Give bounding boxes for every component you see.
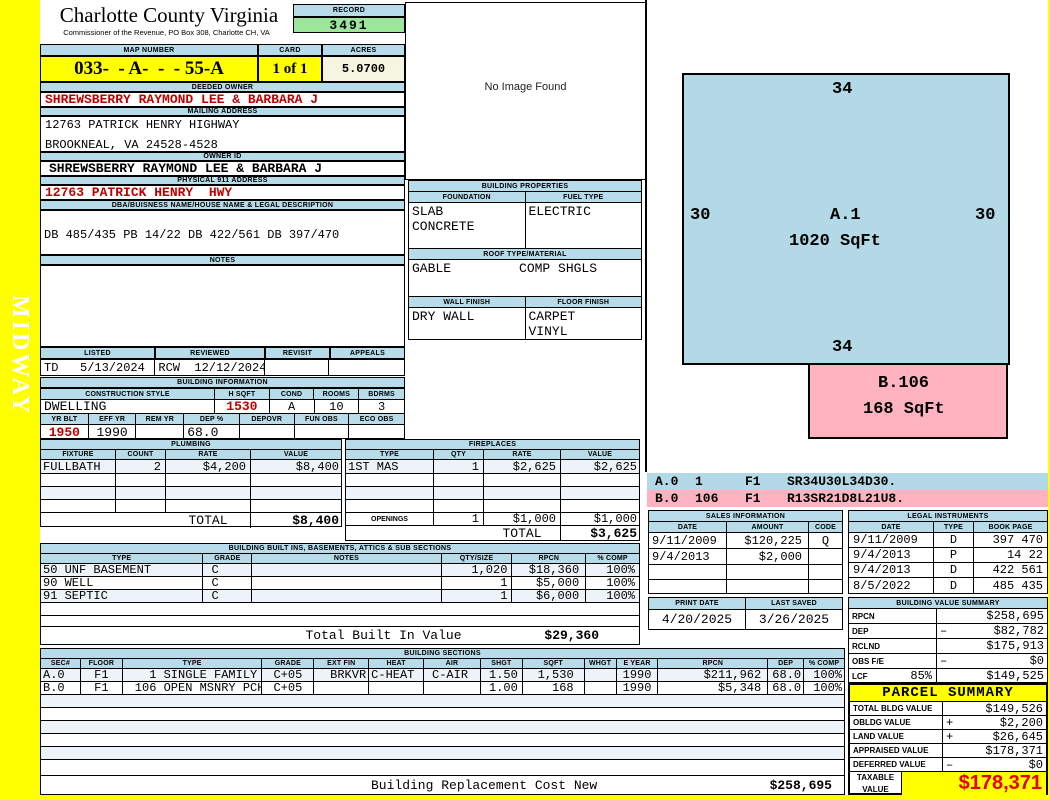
value-summary-row: DEP – $82,782 bbox=[849, 624, 1047, 639]
owner-id-value: SHREWSBERRY RAYMOND LEE & BARBARA J bbox=[40, 161, 405, 176]
bs-h-comp: % COMP bbox=[804, 659, 844, 668]
sale-date: 9/11/2009 bbox=[649, 533, 727, 548]
bs-eyear: 1990 bbox=[617, 669, 659, 681]
taxable-label: TAXABLE VALUE bbox=[850, 772, 902, 795]
li-h-bookpage: BOOK PAGE bbox=[974, 522, 1047, 532]
li-type: P bbox=[934, 548, 974, 562]
builtins-row: 90 WELL C 1 $5,000 100% bbox=[41, 577, 639, 590]
builtins-grade: C bbox=[203, 590, 252, 602]
bs-comp: 100% bbox=[804, 682, 844, 694]
building-information-table: CONSTRUCTION STYLE H SQFT COND ROOMS BDR… bbox=[40, 388, 405, 439]
fireplaces-rate: $2,625 bbox=[484, 460, 561, 473]
fireplaces-qty: 1 bbox=[434, 460, 484, 473]
builtins-comp: 100% bbox=[586, 590, 639, 602]
li-date: 9/4/2013 bbox=[849, 548, 934, 562]
li-bookpage: 485 435 bbox=[974, 578, 1047, 593]
bs-eyear: 1990 bbox=[617, 682, 659, 694]
legal-instrument-row: 9/4/2013 P 14 22 bbox=[849, 548, 1047, 563]
fireplaces-h-value: VALUE bbox=[561, 450, 639, 459]
sketch-a-left-dim: 30 bbox=[690, 206, 710, 225]
roof-value: GABLE COMP SHGLS bbox=[409, 260, 641, 296]
ps-label: LAND VALUE bbox=[850, 730, 943, 743]
value-summary-row: LCF 85% $149,525 bbox=[849, 669, 1047, 683]
bs-rpcn: $5,348 bbox=[658, 682, 768, 694]
legend-a-sec: A.0 bbox=[647, 474, 695, 489]
acres-value: 5.0700 bbox=[322, 56, 405, 82]
bs-type: 106 OPEN MSNRY PCH bbox=[123, 682, 263, 694]
mailing-address-label: MAILING ADDRESS bbox=[40, 107, 405, 116]
legal-instrument-row: 9/11/2009 D 397 470 bbox=[849, 533, 1047, 548]
builtins-type: 91 SEPTIC bbox=[41, 590, 203, 602]
building-value-summary-title: BUILDING VALUE SUMMARY bbox=[849, 598, 1047, 609]
bs-comp: 100% bbox=[804, 669, 844, 681]
bs-shgt: 1.00 bbox=[481, 682, 523, 694]
last-saved-label: LAST SAVED bbox=[746, 598, 842, 609]
vs-label: OBS F/E bbox=[849, 654, 937, 668]
depovr-value bbox=[240, 425, 295, 440]
builtins-h-grade: GRADE bbox=[203, 554, 252, 563]
bs-rpcn: $211,962 bbox=[658, 669, 768, 681]
fireplaces-type: 1ST MAS bbox=[346, 460, 434, 473]
builtins-type: 90 WELL bbox=[41, 577, 203, 589]
plumbing-table: PLUMBING FIXTURE COUNT RATE VALUE FULLBA… bbox=[40, 439, 342, 527]
vs-extra: 85% bbox=[868, 669, 936, 683]
li-bookpage: 397 470 bbox=[974, 533, 1047, 547]
sale-code: Q bbox=[809, 533, 842, 548]
foundation-line2: CONCRETE bbox=[412, 219, 474, 234]
listed-label: LISTED bbox=[40, 347, 155, 359]
li-h-type: TYPE bbox=[934, 522, 974, 532]
revisit-label: REVISIT bbox=[265, 347, 330, 359]
card-value: 1 of 1 bbox=[258, 56, 322, 82]
wall-label: WALL FINISH bbox=[409, 297, 526, 307]
appeals-label: APPEALS bbox=[330, 347, 405, 359]
yrblt-value: 1950 bbox=[41, 425, 89, 440]
li-date: 9/11/2009 bbox=[849, 533, 934, 547]
floor-line2: VINYL bbox=[529, 324, 568, 339]
fireplaces-table: FIREPLACES TYPE QTY RATE VALUE 1ST MAS 1… bbox=[345, 439, 640, 541]
bs-h-grade: GRADE bbox=[262, 659, 314, 668]
mailing-line2: BROOKNEAL, VA 24528-4528 bbox=[45, 138, 218, 152]
sale-amount: $120,225 bbox=[727, 533, 809, 548]
owner-id-label: OWNER ID bbox=[40, 152, 405, 161]
floor-line1: CARPET bbox=[529, 309, 576, 324]
county-title: Charlotte County Virginia bbox=[45, 3, 293, 28]
rooms-label: ROOMS bbox=[314, 389, 359, 399]
builtins-comp: 100% bbox=[586, 577, 639, 589]
ecoobs-value bbox=[349, 425, 404, 440]
physical-address-label: PHYSICAL 911 ADDRESS bbox=[40, 176, 405, 185]
bs-sqft: 1,530 bbox=[523, 669, 585, 681]
ps-sign: + bbox=[943, 730, 956, 743]
building-section-row: B.0 F1 106 OPEN MSNRY PCH C+05 1.00 168 … bbox=[41, 682, 844, 695]
bs-heat: C-HEAT bbox=[369, 669, 424, 681]
cond-label: COND bbox=[270, 389, 315, 399]
remyr-label: REM YR bbox=[136, 414, 184, 424]
bs-heat bbox=[369, 682, 424, 694]
openings-qty: 1 bbox=[434, 513, 484, 525]
sale-code bbox=[809, 549, 842, 564]
sale-amount: $2,000 bbox=[727, 549, 809, 564]
bs-grade: C+05 bbox=[262, 682, 314, 694]
legal-description-label: DBA/BUISNESS NAME/HOUSE NAME & LEGAL DES… bbox=[40, 200, 405, 210]
ps-value: $2,200 bbox=[956, 716, 1046, 729]
sketch-legend-b: B.0 106 F1 R13SR21D8L21U8. bbox=[647, 490, 1048, 507]
sketch-a-top-dim: 34 bbox=[832, 80, 852, 99]
listed-value: TD 5/13/2024 bbox=[41, 360, 155, 375]
acres-label: ACRES bbox=[322, 44, 405, 56]
sales-h-code: CODE bbox=[809, 522, 842, 532]
bs-h-sqft: SQFT bbox=[523, 659, 585, 668]
bs-ext bbox=[314, 682, 369, 694]
openings-label: OPENINGS bbox=[346, 513, 434, 525]
building-properties-title: BUILDING PROPERTIES bbox=[409, 181, 641, 192]
sketch-a-sqft: 1020 SqFt bbox=[789, 232, 881, 251]
vs-label: RPCN bbox=[849, 609, 937, 623]
bs-dep: 68.0 bbox=[768, 682, 804, 694]
bs-h-rpcn: RPCN bbox=[658, 659, 768, 668]
bdrms-label: BDRMS bbox=[359, 389, 404, 399]
vs-label: RCLND bbox=[849, 639, 937, 653]
sales-h-date: DATE bbox=[649, 522, 727, 532]
wall-value: DRY WALL bbox=[409, 308, 526, 339]
building-information-title: BUILDING INFORMATION bbox=[40, 377, 405, 388]
map-number-label: MAP NUMBER bbox=[40, 44, 258, 56]
plumbing-h-fixture: FIXTURE bbox=[41, 450, 116, 459]
bs-whgt bbox=[585, 669, 617, 681]
sketch-a-label: A.1 bbox=[830, 206, 861, 225]
fuel-label: FUEL TYPE bbox=[526, 192, 642, 202]
li-type: D bbox=[934, 563, 974, 577]
plumbing-h-value: VALUE bbox=[251, 450, 341, 459]
ps-sign: + bbox=[943, 716, 956, 729]
bs-h-air: AIR bbox=[424, 659, 481, 668]
bs-h-whgt: WHGT bbox=[585, 659, 617, 668]
legal-description-box: DB 485/435 PB 14/22 DB 422/561 DB 397/47… bbox=[40, 210, 405, 255]
appeals-value bbox=[329, 360, 404, 375]
legend-b-floor: F1 bbox=[745, 491, 787, 506]
ps-sign: – bbox=[943, 758, 956, 771]
replacement-cost-value: $258,695 bbox=[651, 776, 844, 794]
roof-label: ROOF TYPE/MATERIAL bbox=[409, 249, 641, 260]
builtins-h-qty: QTY/SIZE bbox=[442, 554, 513, 563]
value-summary-row: OBS F/E – $0 bbox=[849, 654, 1047, 669]
bs-h-heat: HEAT bbox=[369, 659, 424, 668]
legend-b-sec: B.0 bbox=[647, 491, 695, 506]
li-bookpage: 14 22 bbox=[974, 548, 1047, 562]
dep-value: 68.0 bbox=[184, 425, 240, 440]
card-label: CARD bbox=[258, 44, 322, 56]
bs-h-shgt: SHGT bbox=[481, 659, 523, 668]
fireplaces-total-value: $3,625 bbox=[561, 526, 639, 541]
builtins-rpcn: $5,000 bbox=[512, 577, 586, 589]
rooms-value: 10 bbox=[315, 400, 360, 413]
plumbing-total-label: TOTAL bbox=[166, 513, 251, 528]
map-number-value: 033- - A- - - 55-A bbox=[40, 56, 258, 82]
value-summary-row: RCLND $175,913 bbox=[849, 639, 1047, 654]
building-sections-table: BUILDING SECTIONS SEC# FLOOR TYPE GRADE … bbox=[40, 648, 845, 795]
sales-row: 9/11/2009 $120,225 Q bbox=[649, 533, 842, 549]
openings-rate: $1,000 bbox=[484, 513, 561, 525]
builtins-type: 50 UNF BASEMENT bbox=[41, 564, 203, 576]
bs-whgt bbox=[585, 682, 617, 694]
foundation-value: SLAB CONCRETE bbox=[409, 203, 526, 248]
bs-air: C-AIR bbox=[424, 669, 481, 681]
print-info: PRINT DATE LAST SAVED 4/20/2025 3/26/202… bbox=[648, 597, 843, 630]
sketch-b-label: B.106 bbox=[878, 374, 929, 393]
builtins-h-rpcn: RPCN bbox=[512, 554, 586, 563]
legend-a-code: 1 bbox=[695, 474, 745, 489]
construction-style-label: CONSTRUCTION STYLE bbox=[41, 389, 215, 399]
fuel-value: ELECTRIC bbox=[526, 203, 642, 248]
parcel-summary: PARCEL SUMMARY TOTAL BLDG VALUE $149,526… bbox=[848, 683, 1048, 795]
li-h-date: DATE bbox=[849, 522, 934, 532]
vs-label: LCF bbox=[852, 672, 868, 681]
plumbing-h-count: COUNT bbox=[116, 450, 166, 459]
bs-h-sec: SEC# bbox=[41, 659, 81, 668]
bdrms-value: 3 bbox=[359, 400, 404, 413]
bs-h-floor: FLOOR bbox=[81, 659, 123, 668]
plumbing-title: PLUMBING bbox=[41, 440, 341, 450]
notes-box bbox=[40, 265, 405, 347]
effyr-value: 1990 bbox=[89, 425, 137, 440]
legal-instruments-title: LEGAL INSTRUMENTS bbox=[849, 511, 1047, 522]
value-summary-row: RPCN $258,695 bbox=[849, 609, 1047, 624]
plumbing-fixture: FULLBATH bbox=[41, 460, 116, 473]
fireplaces-row: 1ST MAS 1 $2,625 $2,625 bbox=[346, 460, 639, 474]
physical-address-value: 12763 PATRICK HENRY HWY bbox=[40, 185, 405, 200]
floor-label: FLOOR FINISH bbox=[526, 297, 642, 307]
legal-description-value: DB 485/435 PB 14/22 DB 422/561 DB 397/47… bbox=[44, 228, 339, 242]
li-date: 9/4/2013 bbox=[849, 563, 934, 577]
bs-sec: B.0 bbox=[41, 682, 81, 694]
builtins-total-value: $29,360 bbox=[514, 627, 639, 644]
builtins-rpcn: $18,360 bbox=[512, 564, 586, 576]
bs-h-ext: EXT FIN bbox=[314, 659, 369, 668]
print-date-value: 4/20/2025 bbox=[649, 610, 746, 629]
vs-value: $258,695 bbox=[951, 609, 1047, 623]
foundation-label: FOUNDATION bbox=[409, 192, 526, 202]
notes-label: NOTES bbox=[40, 255, 405, 265]
bs-type: 1 SINGLE FAMILY bbox=[123, 669, 263, 681]
legend-b-trace: R13SR21D8L21U8. bbox=[787, 491, 904, 506]
bs-h-dep: DEP bbox=[768, 659, 804, 668]
ps-label: TOTAL BLDG VALUE bbox=[850, 702, 943, 715]
vs-value: $149,525 bbox=[951, 669, 1047, 683]
bs-shgt: 1.50 bbox=[481, 669, 523, 681]
plumbing-value: $8,400 bbox=[251, 460, 341, 473]
builtins-comp: 100% bbox=[586, 564, 639, 576]
builtins-total-label: Total Built In Value bbox=[253, 627, 514, 644]
builtins-notes bbox=[252, 577, 441, 589]
sketch-divider bbox=[645, 0, 647, 472]
hsqft-value: 1530 bbox=[215, 400, 270, 413]
plumbing-row: FULLBATH 2 $4,200 $8,400 bbox=[41, 460, 341, 474]
revisit-value bbox=[265, 360, 330, 375]
yrblt-label: YR BLT bbox=[41, 414, 89, 424]
sketch-legend-a: A.0 1 F1 SR34U30L34D30. bbox=[647, 473, 1048, 490]
legend-a-floor: F1 bbox=[745, 474, 787, 489]
last-saved-value: 3/26/2025 bbox=[746, 610, 842, 629]
builtins-grade: C bbox=[203, 564, 252, 576]
reviewed-label: REVIEWED bbox=[155, 347, 265, 359]
sketch-b-sqft: 168 SqFt bbox=[863, 400, 945, 419]
bs-grade: C+05 bbox=[262, 669, 314, 681]
deeded-owner-value: SHREWSBERRY RAYMOND LEE & BARBARA J bbox=[40, 92, 405, 107]
funobs-label: FUN OBS bbox=[295, 414, 350, 424]
bs-h-eyear: E YEAR bbox=[617, 659, 659, 668]
builtins-notes bbox=[252, 590, 441, 602]
watermark-midway: MIDWAY bbox=[6, 295, 33, 416]
ps-value: $0 bbox=[956, 758, 1046, 771]
property-record-card: MIDWAY Charlotte County Virginia Commiss… bbox=[0, 0, 1050, 800]
built-ins-title: BUILDING BUILT INS, BASEMENTS, ATTICS & … bbox=[41, 544, 639, 554]
plumbing-h-rate: RATE bbox=[166, 450, 251, 459]
parcel-summary-row: OBLDG VALUE + $2,200 bbox=[850, 716, 1046, 730]
mailing-line1: 12763 PATRICK HENRY HIGHWAY bbox=[45, 118, 239, 132]
floor-value: CARPET VINYL bbox=[526, 308, 642, 339]
sales-title: SALES INFORMATION bbox=[649, 511, 842, 522]
commissioner-line: Commissioner of the Revenue, PO Box 308,… bbox=[40, 28, 293, 37]
legal-instrument-row: 8/5/2022 D 485 435 bbox=[849, 578, 1047, 593]
bs-floor: F1 bbox=[81, 669, 123, 681]
ecoobs-label: ECO OBS bbox=[349, 414, 404, 424]
builtins-h-comp: % COMP bbox=[586, 554, 639, 563]
parcel-summary-title: PARCEL SUMMARY bbox=[850, 685, 1046, 702]
fireplaces-title: FIREPLACES bbox=[346, 440, 639, 450]
sales-row: 9/4/2013 $2,000 bbox=[649, 549, 842, 565]
mailing-address-box: 12763 PATRICK HENRY HIGHWAY BROOKNEAL, V… bbox=[40, 116, 405, 152]
vs-value: $175,913 bbox=[951, 639, 1047, 653]
bs-ext: BRKVR bbox=[314, 669, 369, 681]
bs-air bbox=[424, 682, 481, 694]
vs-sign: – bbox=[937, 624, 951, 638]
builtins-notes bbox=[252, 564, 441, 576]
plumbing-total-value: $8,400 bbox=[251, 513, 341, 528]
builtins-qty: 1 bbox=[442, 577, 513, 589]
sales-h-amount: AMOUNT bbox=[727, 522, 809, 532]
fireplaces-openings-row: OPENINGS 1 $1,000 $1,000 bbox=[346, 513, 639, 526]
funobs-value bbox=[295, 425, 350, 440]
legal-instrument-row: 9/4/2013 D 422 561 bbox=[849, 563, 1047, 578]
building-section-row: A.0 F1 1 SINGLE FAMILY C+05 BRKVR C-HEAT… bbox=[41, 669, 844, 682]
ps-label: DEFERRED VALUE bbox=[850, 758, 943, 771]
deeded-owner-label: DEEDED OWNER bbox=[40, 82, 405, 92]
sketch-a-bottom-dim: 34 bbox=[832, 338, 852, 357]
reviewed-value: RCW 12/12/2024 bbox=[155, 360, 264, 375]
effyr-label: EFF YR bbox=[89, 414, 137, 424]
construction-style-value: DWELLING bbox=[41, 400, 215, 413]
image-placeholder: No Image Found bbox=[405, 2, 646, 180]
fireplaces-h-qty: QTY bbox=[434, 450, 484, 459]
li-bookpage: 422 561 bbox=[974, 563, 1047, 577]
ps-label: OBLDG VALUE bbox=[850, 716, 943, 729]
ps-label: APPRAISED VALUE bbox=[850, 744, 943, 757]
builtins-h-notes: NOTES bbox=[252, 554, 441, 563]
taxable-value: $178,371 bbox=[902, 772, 1046, 795]
bs-floor: F1 bbox=[81, 682, 123, 694]
building-properties-table: BUILDING PROPERTIES FOUNDATION FUEL TYPE… bbox=[408, 180, 642, 340]
building-sections-title: BUILDING SECTIONS bbox=[41, 649, 844, 659]
building-value-summary: BUILDING VALUE SUMMARY RPCN $258,695 DEP… bbox=[848, 597, 1048, 683]
fireplaces-total-label: TOTAL bbox=[484, 526, 561, 541]
bs-h-type: TYPE bbox=[123, 659, 263, 668]
builtins-row: 50 UNF BASEMENT C 1,020 $18,360 100% bbox=[41, 564, 639, 577]
sale-date: 9/4/2013 bbox=[649, 549, 727, 564]
li-type: D bbox=[934, 533, 974, 547]
vs-value: $82,782 bbox=[951, 624, 1047, 638]
foundation-line1: SLAB bbox=[412, 204, 443, 219]
parcel-summary-row: APPRAISED VALUE $178,371 bbox=[850, 744, 1046, 758]
plumbing-count: 2 bbox=[116, 460, 166, 473]
review-values: TD 5/13/2024 RCW 12/12/2024 bbox=[40, 359, 405, 376]
bs-sqft: 168 bbox=[523, 682, 585, 694]
legend-b-code: 106 bbox=[695, 491, 745, 506]
sales-table: SALES INFORMATION DATE AMOUNT CODE 9/11/… bbox=[648, 510, 843, 594]
plumbing-rate: $4,200 bbox=[166, 460, 251, 473]
print-date-label: PRINT DATE bbox=[649, 598, 746, 609]
legend-a-trace: SR34U30L34D30. bbox=[787, 474, 896, 489]
openings-value: $1,000 bbox=[561, 513, 639, 525]
roof-type: GABLE bbox=[409, 261, 451, 276]
vs-sign: – bbox=[937, 654, 951, 668]
fireplaces-h-rate: RATE bbox=[484, 450, 561, 459]
vs-value: $0 bbox=[951, 654, 1047, 668]
roof-material: COMP SHGLS bbox=[451, 261, 597, 276]
fireplaces-value: $2,625 bbox=[561, 460, 639, 473]
record-label: RECORD bbox=[293, 4, 405, 17]
fireplaces-h-type: TYPE bbox=[346, 450, 434, 459]
built-ins-table: BUILDING BUILT INS, BASEMENTS, ATTICS & … bbox=[40, 543, 640, 645]
parcel-summary-row: DEFERRED VALUE – $0 bbox=[850, 758, 1046, 772]
no-image-text: No Image Found bbox=[406, 81, 645, 93]
li-type: D bbox=[934, 578, 974, 593]
dep-label: DEP % bbox=[184, 414, 240, 424]
replacement-cost-label: Building Replacement Cost New bbox=[371, 776, 651, 794]
parcel-summary-row: TOTAL BLDG VALUE $149,526 bbox=[850, 702, 1046, 716]
remyr-value bbox=[136, 425, 184, 440]
hsqft-label: H SQFT bbox=[215, 389, 270, 399]
parcel-summary-row: LAND VALUE + $26,645 bbox=[850, 730, 1046, 744]
builtins-h-type: TYPE bbox=[41, 554, 203, 563]
bs-sec: A.0 bbox=[41, 669, 81, 681]
builtins-qty: 1 bbox=[442, 590, 513, 602]
sketch-a-right-dim: 30 bbox=[975, 206, 995, 225]
ps-value: $149,526 bbox=[956, 702, 1046, 715]
builtins-row: 91 SEPTIC C 1 $6,000 100% bbox=[41, 590, 639, 603]
builtins-grade: C bbox=[203, 577, 252, 589]
ps-value: $26,645 bbox=[956, 730, 1046, 743]
builtins-rpcn: $6,000 bbox=[512, 590, 586, 602]
taxable-value-row: TAXABLE VALUE $178,371 bbox=[850, 772, 1046, 795]
record-number: 3491 bbox=[293, 17, 405, 33]
ps-value: $178,371 bbox=[956, 744, 1046, 757]
builtins-qty: 1,020 bbox=[442, 564, 513, 576]
vs-label: DEP bbox=[849, 624, 937, 638]
depovr-label: DEPOVR bbox=[240, 414, 295, 424]
cond-value: A bbox=[270, 400, 315, 413]
li-date: 8/5/2022 bbox=[849, 578, 934, 593]
legal-instruments-table: LEGAL INSTRUMENTS DATE TYPE BOOK PAGE 9/… bbox=[848, 510, 1048, 594]
bs-dep: 68.0 bbox=[768, 669, 804, 681]
